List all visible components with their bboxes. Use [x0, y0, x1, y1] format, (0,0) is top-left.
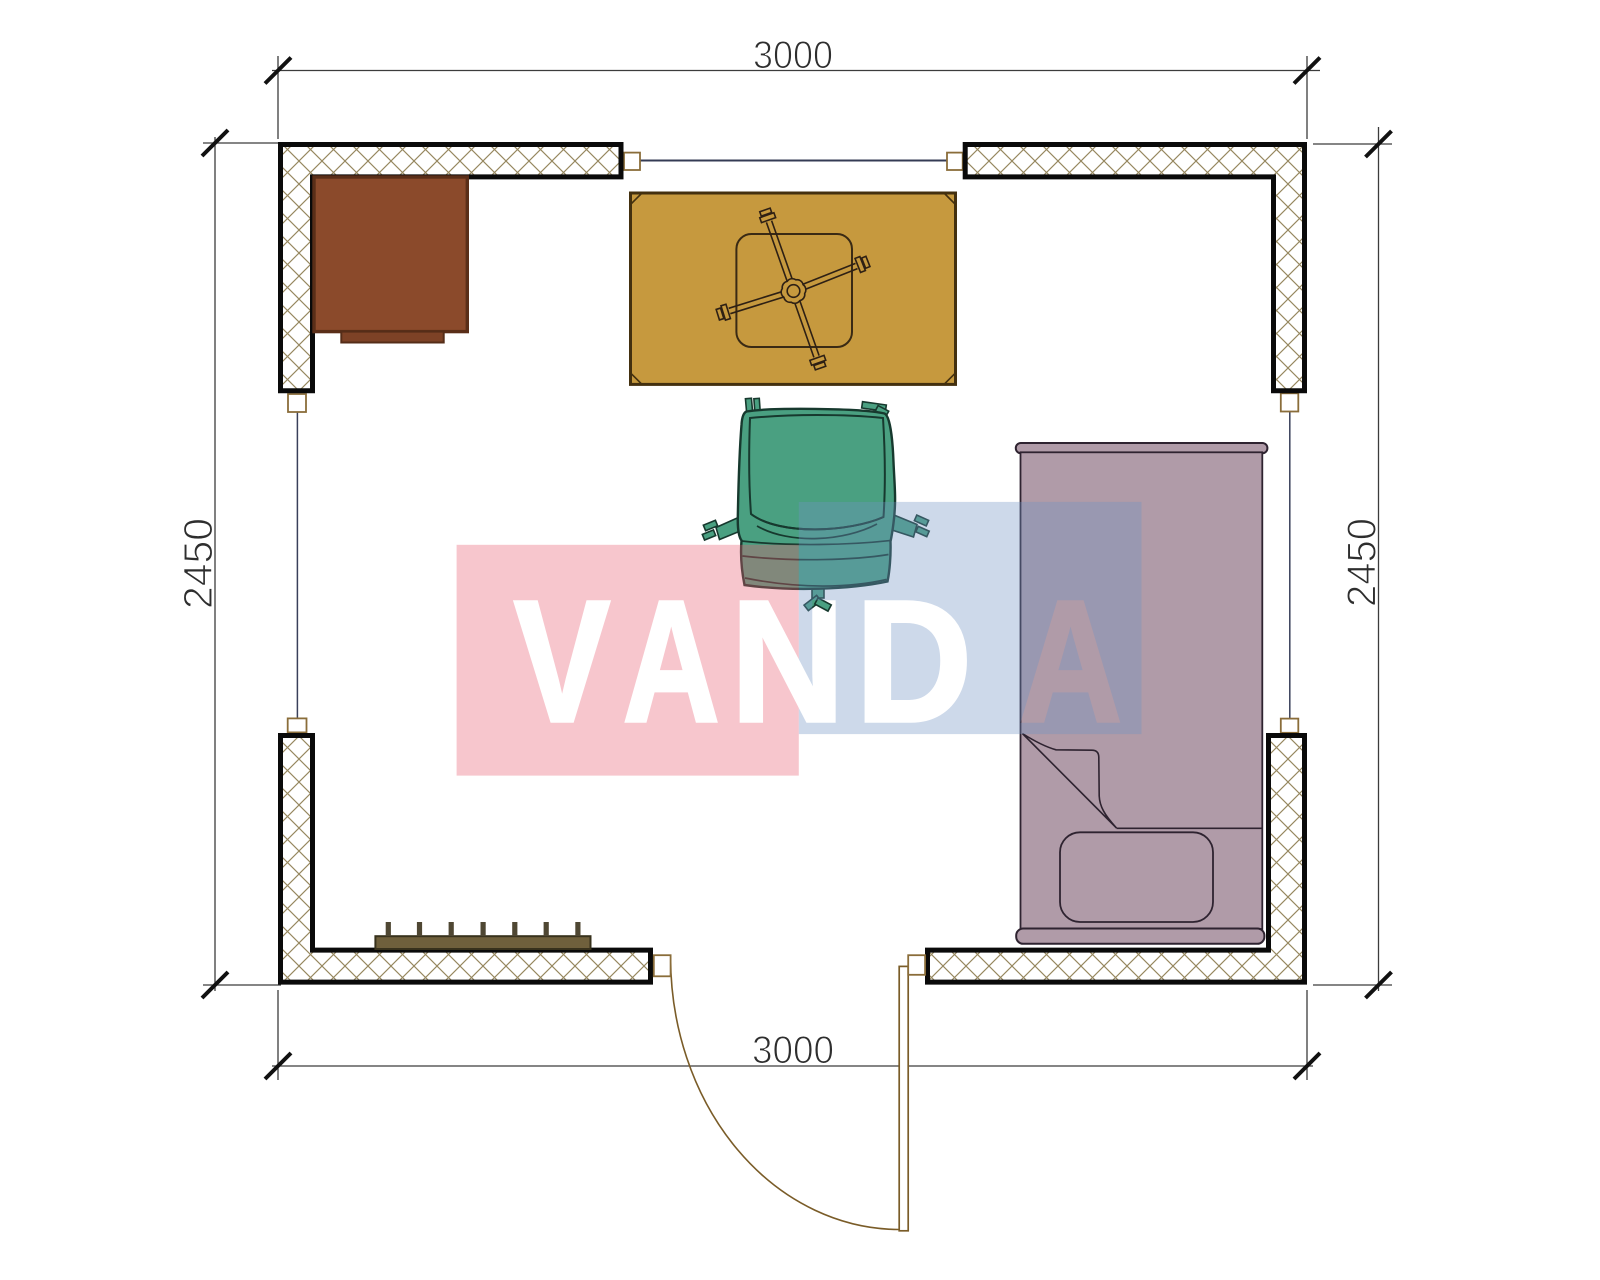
svg-text:3000: 3000	[753, 34, 833, 77]
svg-text:2450: 2450	[175, 518, 221, 609]
svg-text:3000: 3000	[752, 1029, 834, 1072]
svg-text:2450: 2450	[1339, 518, 1385, 607]
